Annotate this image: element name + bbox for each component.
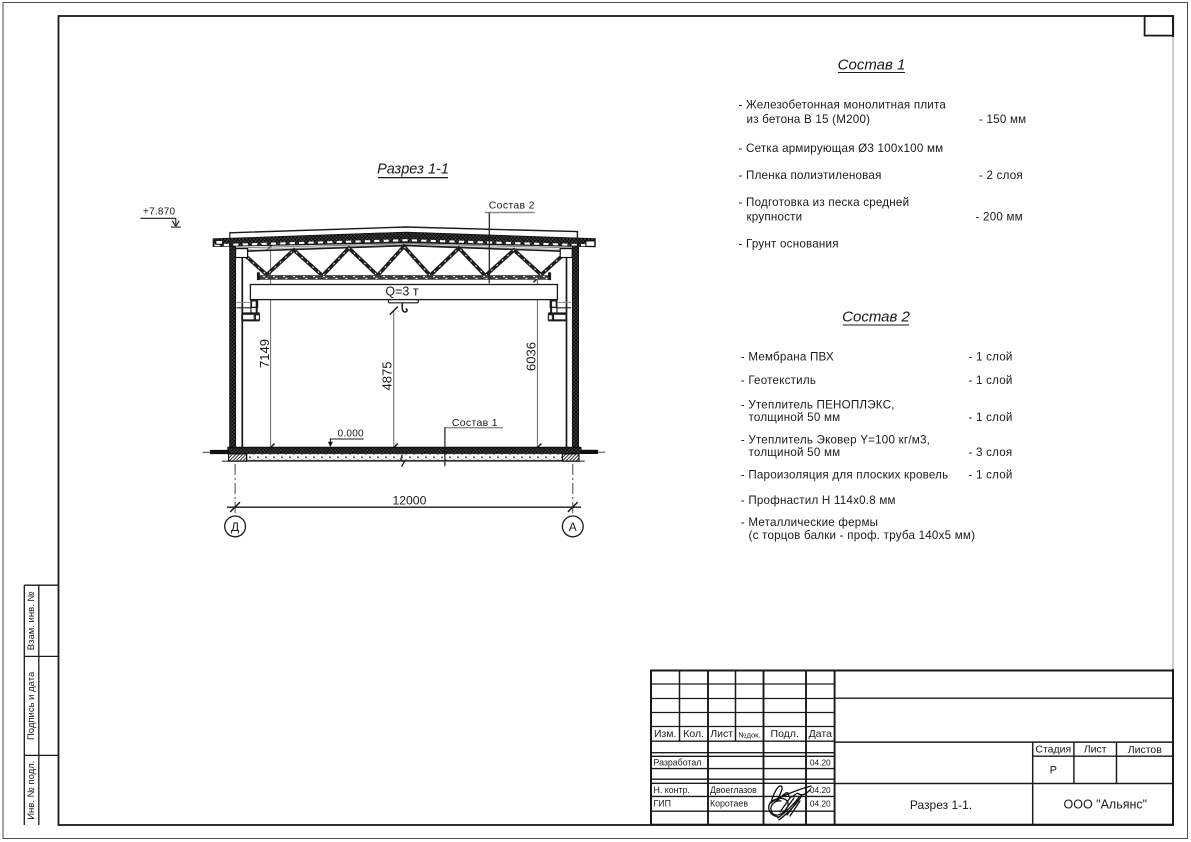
svg-text:- Пленка полиэтиленовая: - Пленка полиэтиленовая [739, 169, 882, 182]
svg-text:- 1 слой: - 1 слой [969, 468, 1013, 481]
svg-text:- Утеплитель ПЕНОПЛЭКС,: - Утеплитель ПЕНОПЛЭКС, [741, 399, 895, 412]
svg-text:- Железобетонная монолитная п: - Железобетонная монолитная плита [739, 99, 947, 112]
svg-text:- Металлические фермы: - Металлические фермы [741, 516, 878, 529]
svg-text:- Подготовка из песка средней: - Подготовка из песка средней [739, 196, 910, 209]
svg-text:Разрез 1-1.: Разрез 1-1. [910, 798, 972, 812]
svg-text:Подпись и дата: Подпись и дата [26, 671, 37, 740]
svg-text:7149: 7149 [257, 339, 272, 368]
svg-text:Н. контр.: Н. контр. [654, 785, 690, 795]
svg-text:0.000: 0.000 [338, 429, 364, 440]
svg-text:4875: 4875 [380, 362, 395, 391]
svg-text:Изм.: Изм. [654, 728, 677, 740]
svg-text:№док.: №док. [738, 730, 760, 739]
svg-text:- Сетка армирующая Ø3 100х100: - Сетка армирующая Ø3 100х100 мм [739, 142, 944, 155]
svg-text:крупности: крупности [747, 210, 803, 223]
svg-text:- 1 слой: - 1 слой [969, 374, 1013, 387]
svg-text:толщиной 50 мм: толщиной 50 мм [749, 411, 841, 424]
svg-text:- 150 мм: - 150 мм [979, 113, 1026, 126]
svg-text:- Профнастил Н 114х0.8 мм: - Профнастил Н 114х0.8 мм [741, 494, 896, 507]
svg-text:Взам. инв. №: Взам. инв. № [26, 591, 37, 650]
svg-text:04.20: 04.20 [810, 758, 831, 768]
svg-text:04.20: 04.20 [810, 799, 831, 809]
svg-text:А: А [569, 520, 577, 534]
svg-text:Двоеглазов: Двоеглазов [710, 785, 757, 795]
svg-text:Состав 2: Состав 2 [842, 309, 910, 326]
svg-text:Q=3 т: Q=3 т [385, 285, 418, 299]
svg-text:- 1 слой: - 1 слой [969, 411, 1013, 424]
svg-text:Дата: Дата [809, 728, 832, 740]
svg-text:- Мембрана ПВХ: - Мембрана ПВХ [741, 350, 834, 363]
svg-text:- 1 слой: - 1 слой [969, 350, 1013, 363]
svg-text:- Пароизоляция для плоских кро: - Пароизоляция для плоских кровель [741, 468, 949, 481]
svg-text:- Геотекстиль: - Геотекстиль [741, 374, 816, 387]
svg-text:Лист: Лист [710, 728, 733, 740]
svg-text:Листов: Листов [1128, 744, 1163, 756]
svg-text:- Утеплитель Эковер Y=100 кг/м: - Утеплитель Эковер Y=100 кг/м3, [741, 433, 930, 446]
svg-text:Разработал: Разработал [654, 758, 702, 768]
svg-text:Р: Р [1050, 765, 1057, 777]
svg-text:Состав 1: Состав 1 [838, 57, 906, 74]
svg-text:ГИП: ГИП [654, 799, 671, 809]
svg-text:Инв. № подл.: Инв. № подл. [26, 761, 37, 820]
svg-text:- 3 слоя: - 3 слоя [969, 446, 1013, 459]
svg-text:(с торцов балки - проф. труба: (с торцов балки - проф. труба 140х5 мм) [749, 529, 976, 542]
svg-text:Разрез 1-1: Разрез 1-1 [377, 162, 449, 178]
svg-text:12000: 12000 [392, 494, 426, 508]
svg-text:- 200 мм: - 200 мм [976, 210, 1023, 223]
svg-text:Лист: Лист [1084, 743, 1107, 755]
svg-text:04.20: 04.20 [810, 785, 831, 795]
svg-text:Коротаев: Коротаев [710, 799, 748, 809]
svg-text:толщиной 50 мм: толщиной 50 мм [749, 446, 841, 459]
svg-text:Состав 2: Состав 2 [489, 200, 535, 212]
svg-text:ООО "Альянс": ООО "Альянс" [1064, 798, 1148, 812]
svg-text:- 2 слоя: - 2 слоя [979, 169, 1023, 182]
svg-text:- Грунт основания: - Грунт основания [739, 237, 839, 250]
svg-text:Кол.: Кол. [683, 728, 704, 740]
svg-text:Д: Д [231, 520, 239, 534]
svg-text:Стадия: Стадия [1035, 743, 1071, 755]
svg-text:Подл.: Подл. [771, 728, 799, 740]
svg-text:из бетона В 15 (М200): из бетона В 15 (М200) [747, 113, 871, 126]
svg-text:+7.870: +7.870 [143, 207, 176, 218]
svg-text:6036: 6036 [524, 342, 539, 371]
